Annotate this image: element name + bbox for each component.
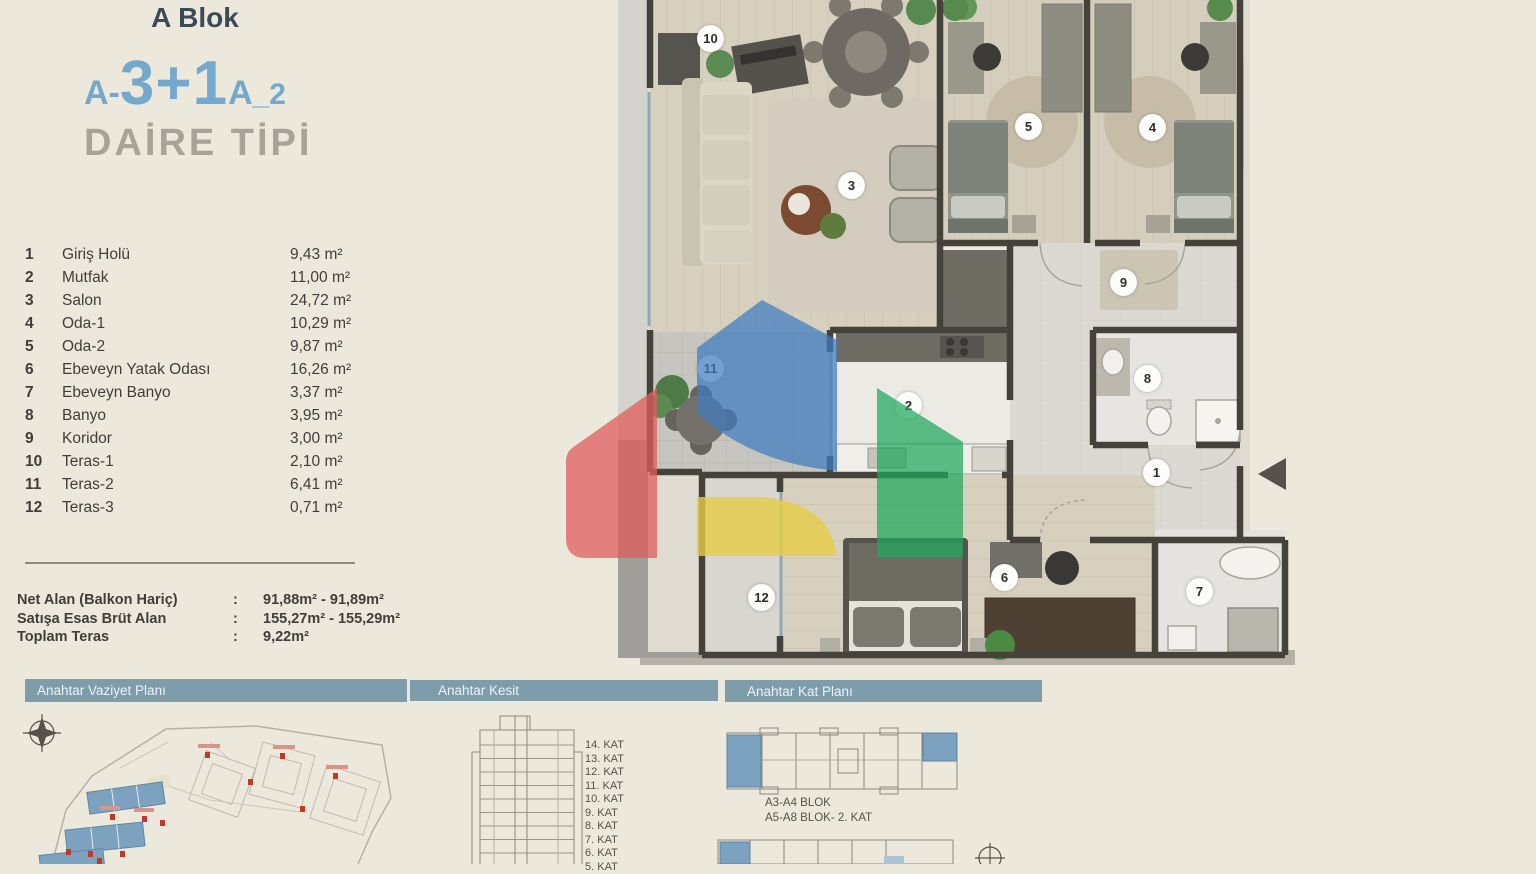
area-summary: Net Alan (Balkon Hariç):91,88m² - 91,89m… [17,592,400,648]
floor-label: 14. KAT [585,739,624,753]
room-name: Mutfak [62,269,109,287]
room-number: 6 [25,361,47,379]
room-area: 16,26 m² [290,361,351,379]
room-area: 11,00 m² [290,269,350,287]
compass-icon [23,714,61,752]
kat-plan-label-2: A5-A8 BLOK- 2. KAT [765,812,872,824]
room-marker: 4 [1139,114,1166,141]
room-area: 6,41 m² [290,476,343,494]
room-name: Giriş Holü [62,246,130,264]
room-number: 3 [25,292,47,310]
room-name: Banyo [62,407,106,425]
floor-label: 11. KAT [585,780,624,794]
highlighted-buildings [39,782,165,864]
room-name: Oda-2 [62,338,105,356]
room-marker: 6 [991,564,1018,591]
room-row: 10Teras-12,10 m² [25,453,385,476]
room-row: 11Teras-26,41 m² [25,476,385,499]
summary-value: 9,22m² [263,629,309,645]
floor-label: 8. KAT [585,820,624,834]
kat-plan-sketch [718,728,1005,864]
room-number: 9 [25,430,47,448]
room-marker: 12 [748,584,775,611]
room-marker: 9 [1110,269,1137,296]
room-number: 2 [25,269,47,287]
type-main: 3+1 [120,49,228,118]
room-number: 7 [25,384,47,402]
room-number: 12 [25,499,47,517]
kesit-sketch [472,716,582,864]
room-marker: 10 [697,25,724,52]
room-row: 8Banyo3,95 m² [25,407,385,430]
site-plan-sketch [23,714,391,864]
summary-row: Satışa Esas Brüt Alan:155,27m² - 155,29m… [17,611,400,630]
room-marker: 3 [838,172,865,199]
room-row: 1Giriş Holü9,43 m² [25,246,385,269]
floor-label: 9. KAT [585,807,624,821]
room-number: 10 [25,453,47,471]
room-marker: 7 [1186,578,1213,605]
summary-value: 155,27m² - 155,29m² [263,611,400,627]
apartment-type-title: A-3+1A_2 [84,48,286,119]
summary-colon: : [233,611,263,627]
room-list: 1Giriş Holü9,43 m² 2Mutfak11,00 m² 3Salo… [25,246,385,522]
room-row: 5Oda-29,87 m² [25,338,385,361]
summary-row: Toplam Teras:9,22m² [17,629,400,648]
room-area: 3,37 m² [290,384,343,402]
summary-divider [25,562,355,564]
room-name: Ebeveyn Banyo [62,384,171,402]
room-row: 12Teras-30,71 m² [25,499,385,522]
entrance-arrow-icon [1258,458,1286,490]
floor-label: 7. KAT [585,834,624,848]
room-name: Ebeveyn Yatak Odası [62,361,211,379]
floor-label: 5. KAT [585,861,624,874]
floor-label: 13. KAT [585,753,624,767]
room-area: 9,43 m² [290,246,343,264]
compass-small-icon [975,843,1005,864]
section-bar-site-plan: Anahtar Vaziyet Planı [25,679,407,702]
room-number: 11 [25,476,47,494]
summary-colon: : [233,592,263,608]
apartment-brochure-page: { "colors": { "bg": "#ece8dc", "accent_b… [0,0,1536,864]
floor-plan [618,0,1295,665]
room-name: Teras-3 [62,499,114,517]
room-marker: 1 [1143,459,1170,486]
room-marker: 2 [895,392,922,419]
room-number: 8 [25,407,47,425]
kat-plan-label-1: A3-A4 BLOK [765,797,831,809]
room-area: 3,00 m² [290,430,343,448]
room-area: 10,29 m² [290,315,351,333]
room-row: 9Koridor3,00 m² [25,430,385,453]
room-marker: 11 [697,355,724,382]
summary-row: Net Alan (Balkon Hariç):91,88m² - 91,89m… [17,592,400,611]
floor-label: 12. KAT [585,766,624,780]
summary-value: 91,88m² - 91,89m² [263,592,384,608]
floor-label: 6. KAT [585,847,624,861]
room-name: Koridor [62,430,112,448]
room-area: 9,87 m² [290,338,343,356]
section-bar-kesit: Anahtar Kesit [410,680,718,701]
page-subtitle: DAİRE TİPİ [84,122,312,165]
room-name: Teras-2 [62,476,114,494]
room-marker: 5 [1015,113,1042,140]
type-prefix: A- [84,74,120,112]
section-bar-kat-plan: Anahtar Kat Planı [725,680,1042,702]
room-area: 3,95 m² [290,407,343,425]
room-number: 1 [25,246,47,264]
kesit-floor-labels: 14. KAT 13. KAT 12. KAT 11. KAT 10. KAT … [585,739,624,874]
room-marker: 8 [1134,365,1161,392]
summary-label: Toplam Teras [17,629,233,645]
summary-colon: : [233,629,263,645]
room-row: 6Ebeveyn Yatak Odası16,26 m² [25,361,385,384]
room-number: 5 [25,338,47,356]
type-suffix-a: A [228,74,253,112]
room-name: Oda-1 [62,315,105,333]
room-row: 7Ebeveyn Banyo3,37 m² [25,384,385,407]
room-row: 2Mutfak11,00 m² [25,269,385,292]
room-row: 3Salon24,72 m² [25,292,385,315]
floor-label: 10. KAT [585,793,624,807]
room-area: 24,72 m² [290,292,351,310]
type-suffix-n: _2 [253,78,286,111]
room-name: Teras-1 [62,453,114,471]
block-title: A Blok [90,2,300,34]
room-number: 4 [25,315,47,333]
room-area: 2,10 m² [290,453,343,471]
room-name: Salon [62,292,102,310]
room-area: 0,71 m² [290,499,343,517]
summary-label: Satışa Esas Brüt Alan [17,611,233,627]
room-row: 4Oda-110,29 m² [25,315,385,338]
summary-label: Net Alan (Balkon Hariç) [17,592,233,608]
